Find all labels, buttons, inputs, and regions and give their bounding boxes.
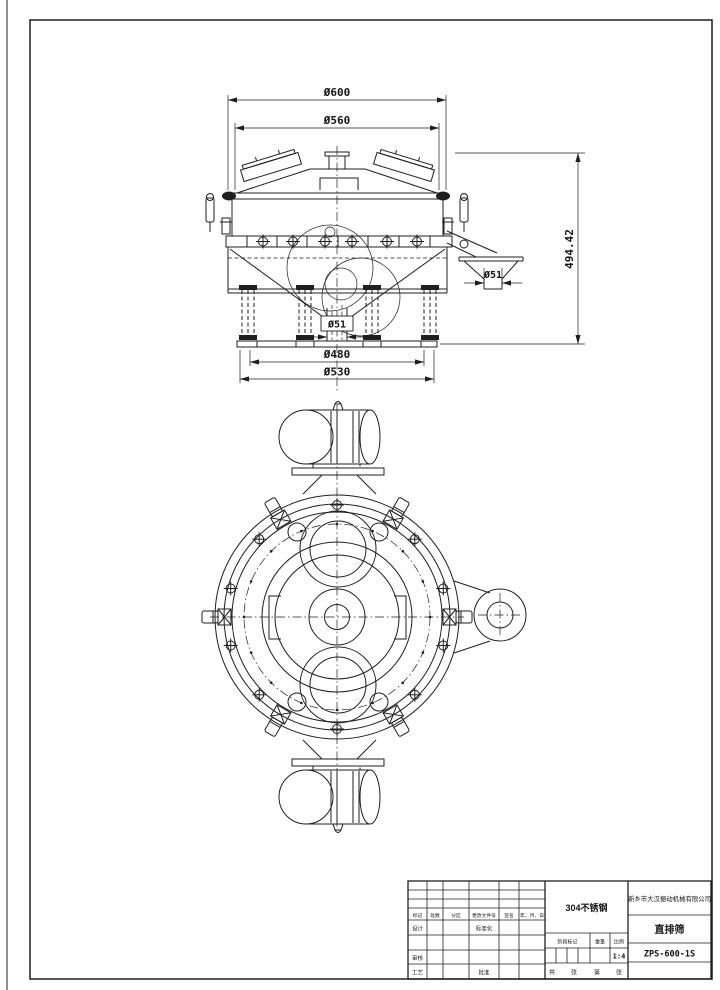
plan-inlet-port-top xyxy=(288,511,388,587)
dim-label-top-outer: Ø600 xyxy=(323,86,351,99)
tb-label-check: 审核 xyxy=(412,954,424,962)
tb-header-mark: 标记 xyxy=(413,912,423,919)
plan-inlet-port-bottom xyxy=(288,647,388,723)
base-drum xyxy=(228,247,447,293)
tb-sheet-total: 共 xyxy=(549,969,555,977)
flange-band xyxy=(226,235,452,249)
plan-discharge-lug xyxy=(454,581,526,653)
tb-material: 304不锈钢 xyxy=(565,902,607,913)
tb-header-zone: 分区 xyxy=(451,912,461,919)
plan-view xyxy=(202,402,526,833)
tb-product-name: 直排筛 xyxy=(655,923,685,936)
lid-inlet-spout-right xyxy=(374,145,437,182)
tb-sheet-zhang1: 张 xyxy=(571,969,577,977)
tb-label-craft: 工艺 xyxy=(412,970,424,977)
tb-label-standardize: 标准化 xyxy=(476,925,493,933)
tb-drawing-number: ZPS-600-1S xyxy=(644,950,695,960)
lid-rim xyxy=(222,192,450,201)
dim-label-height: 494.42 xyxy=(563,229,576,269)
plan-motor-top xyxy=(279,402,384,495)
dim-label-center-outlet: Ø51 xyxy=(327,319,346,331)
tb-header-signature: 签名 xyxy=(504,912,514,919)
plan-ring-dots xyxy=(243,523,432,712)
front-view-dimensions: Ø600 Ø560 494.42 Ø51 xyxy=(228,86,585,383)
dim-label-base-inner: Ø480 xyxy=(323,348,351,361)
tb-label-approve: 批准 xyxy=(478,969,490,977)
drawing-sheet: Ø600 Ø560 494.42 Ø51 xyxy=(0,0,720,990)
tb-label-design: 设计 xyxy=(412,925,424,933)
front-view xyxy=(206,145,523,392)
tb-sheet-no: 第 xyxy=(594,969,600,977)
plan-brackets xyxy=(269,596,406,639)
tb-label-weight: 重量 xyxy=(595,939,605,946)
tb-sheet-zhang2: 张 xyxy=(616,969,622,977)
sheet-frame xyxy=(7,0,712,990)
tb-label-stage: 阶段标记 xyxy=(557,939,577,946)
cad-drawing: Ø600 Ø560 494.42 Ø51 xyxy=(0,0,720,990)
lid-inlet-spout-left xyxy=(238,145,301,182)
tb-header-date: 年、月、日 xyxy=(520,912,544,919)
screen-drum xyxy=(232,199,443,236)
dim-label-top-inner: Ø560 xyxy=(323,114,351,127)
title-block: 标记 处数 分区 更改文件号 签名 年、月、日 设计 标准化 审核 工艺 批准 … xyxy=(408,881,711,979)
tb-label-scale: 比例 xyxy=(614,939,624,946)
dim-label-base-outer: Ø530 xyxy=(323,366,351,379)
dim-label-side-outlet: Ø51 xyxy=(483,269,502,281)
tb-scale-value: 1:4 xyxy=(613,953,626,961)
tb-header-changefile: 更改文件号 xyxy=(472,912,496,919)
plan-motor-bottom xyxy=(279,740,384,833)
tb-company: 新乡市大汉振动机械有限公司 xyxy=(628,894,711,903)
tb-header-count: 处数 xyxy=(430,912,440,919)
